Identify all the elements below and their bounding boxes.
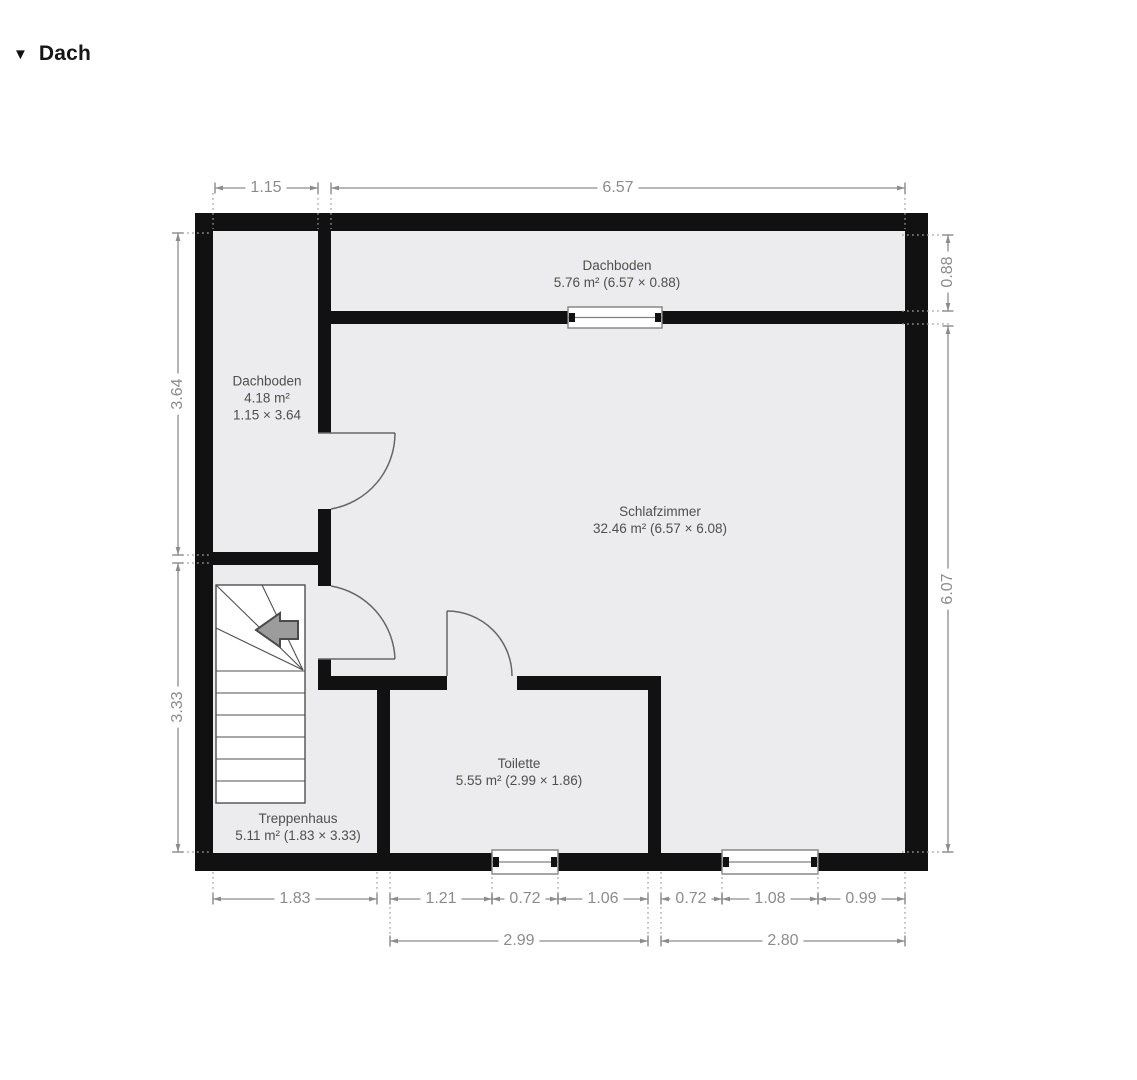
room-details: 32.46 m² (6.57 × 6.08) (593, 520, 727, 537)
room-details: 5.55 m² (2.99 × 1.86) (456, 772, 582, 789)
room-area: 4.18 m² (232, 390, 301, 407)
room-label-toilette: Toilette 5.55 m² (2.99 × 1.86) (456, 755, 582, 789)
room-label-schlafzimmer: Schlafzimmer 32.46 m² (6.57 × 6.08) (593, 503, 727, 537)
room-details: 5.11 m² (1.83 × 3.33) (235, 827, 360, 844)
dim-bottom-total-1: 2.99 (498, 932, 539, 950)
dim-bottom-7: 0.99 (840, 890, 881, 908)
room-label-dachboden-left: Dachboden 4.18 m² 1.15 × 3.64 (232, 373, 301, 424)
dim-bottom-1: 1.83 (274, 890, 315, 908)
window-toilette-south (492, 850, 558, 874)
dim-left-2: 3.33 (169, 686, 187, 727)
dim-top-1: 1.15 (245, 179, 286, 197)
dim-bottom-total-2: 2.80 (762, 932, 803, 950)
room-label-dachboden-top: Dachboden 5.76 m² (6.57 × 0.88) (554, 257, 680, 291)
dim-bottom-4: 1.06 (582, 890, 623, 908)
dim-bottom-3: 0.72 (504, 890, 545, 908)
room-name: Dachboden (554, 257, 680, 274)
room-details: 5.76 m² (6.57 × 0.88) (554, 274, 680, 291)
dim-top-2: 6.57 (597, 179, 638, 197)
dim-left-1: 3.64 (169, 373, 187, 414)
dim-bottom-5: 0.72 (670, 890, 711, 908)
dim-bottom-6: 1.08 (749, 890, 790, 908)
dim-right-1: 0.88 (939, 251, 957, 292)
room-name: Dachboden (232, 373, 301, 390)
room-name: Toilette (456, 755, 582, 772)
room-label-treppenhaus: Treppenhaus 5.11 m² (1.83 × 3.33) (235, 810, 360, 844)
floorplan-page: ▼ Dach (0, 0, 1137, 1080)
staircase (216, 585, 305, 803)
window-top-strip (568, 307, 662, 328)
floorplan-drawing (0, 0, 1137, 1080)
room-name: Schlafzimmer (593, 503, 727, 520)
room-name: Treppenhaus (235, 810, 360, 827)
window-schlafzimmer-south (722, 850, 818, 874)
room-size: 1.15 × 3.64 (232, 407, 301, 424)
dim-bottom-2: 1.21 (420, 890, 461, 908)
dim-right-2: 6.07 (939, 568, 957, 609)
